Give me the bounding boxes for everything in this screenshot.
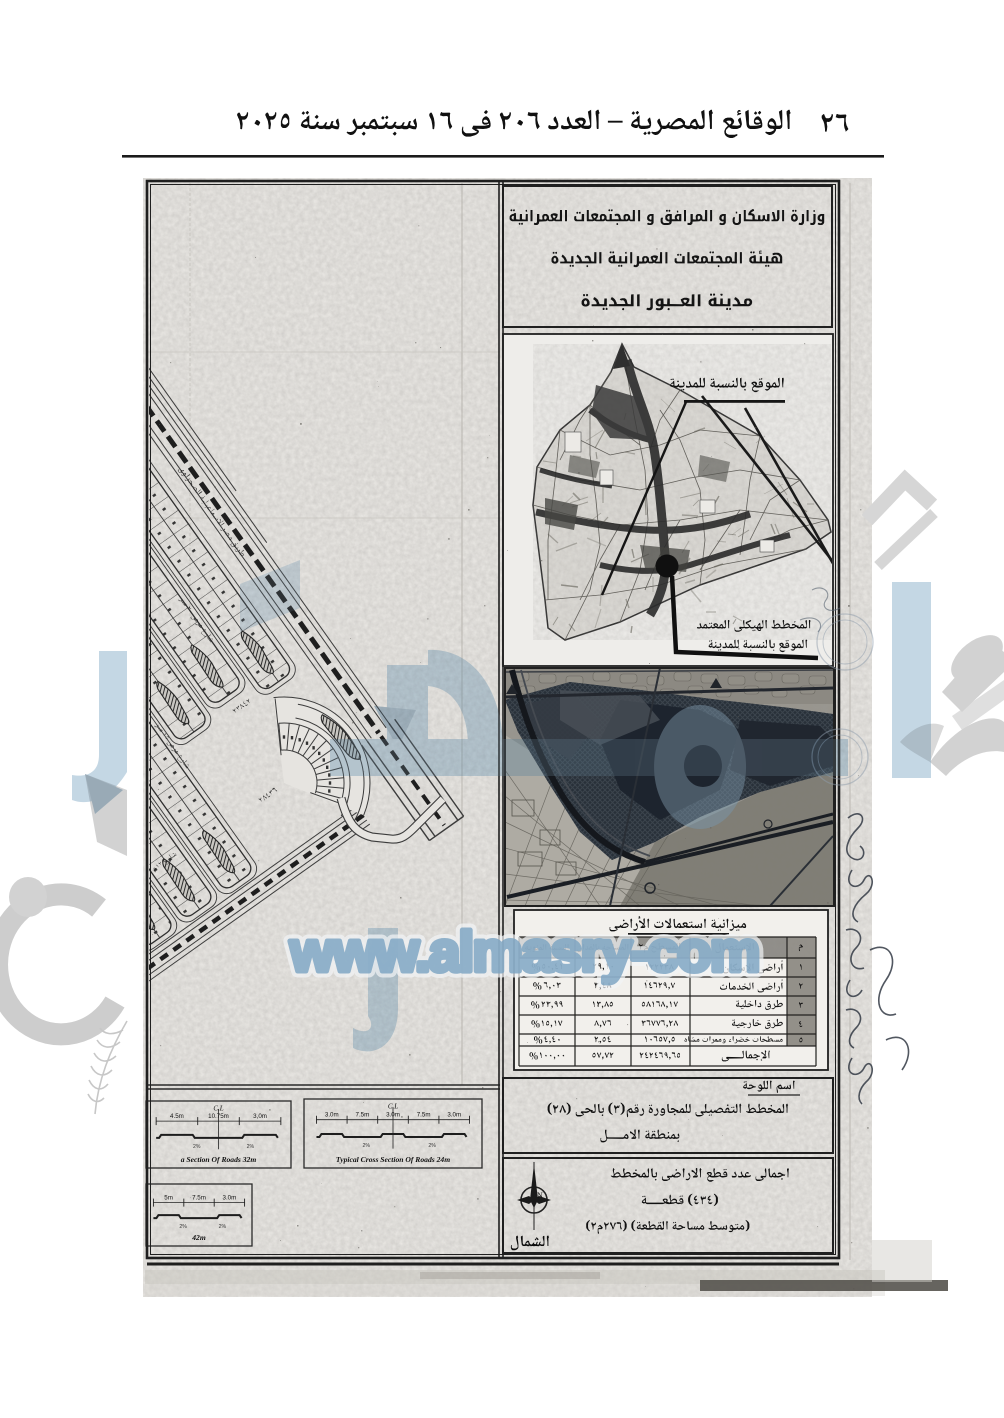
svg-text:2%: 2% xyxy=(247,1144,255,1150)
svg-text:Typical Cross Section Of Road: Typical Cross Section Of Roads 24m xyxy=(336,1155,450,1164)
svg-text:3.0m: 3.0m xyxy=(325,1112,339,1119)
svg-text:a Section Of Roads 32m: a Section Of Roads 32m xyxy=(181,1155,257,1164)
svg-text:2%: 2% xyxy=(179,1224,187,1230)
svg-text:2%: 2% xyxy=(219,1224,227,1230)
svg-text:7.5m: 7.5m xyxy=(417,1112,431,1119)
svg-text:42m: 42m xyxy=(191,1233,206,1242)
svg-text:5m: 5m xyxy=(164,1195,173,1202)
svg-text:www.almasry-com: www.almasry-com xyxy=(289,920,758,984)
svg-text:N: N xyxy=(537,1191,543,1200)
svg-text:3.0m: 3.0m xyxy=(447,1112,461,1119)
svg-text:C.L: C.L xyxy=(388,1103,398,1111)
svg-text:2%: 2% xyxy=(428,1143,436,1149)
svg-text:C.L: C.L xyxy=(213,1104,223,1112)
svg-text:2%: 2% xyxy=(363,1143,371,1149)
svg-text:7.5m: 7.5m xyxy=(356,1112,370,1119)
svg-text:7.5m: 7.5m xyxy=(192,1195,206,1202)
svg-text:2%: 2% xyxy=(193,1144,201,1150)
svg-text:4.5m: 4.5m xyxy=(170,1113,184,1120)
svg-text:3.0m: 3.0m xyxy=(253,1113,267,1120)
svg-text:3.0m: 3.0m xyxy=(223,1195,237,1202)
